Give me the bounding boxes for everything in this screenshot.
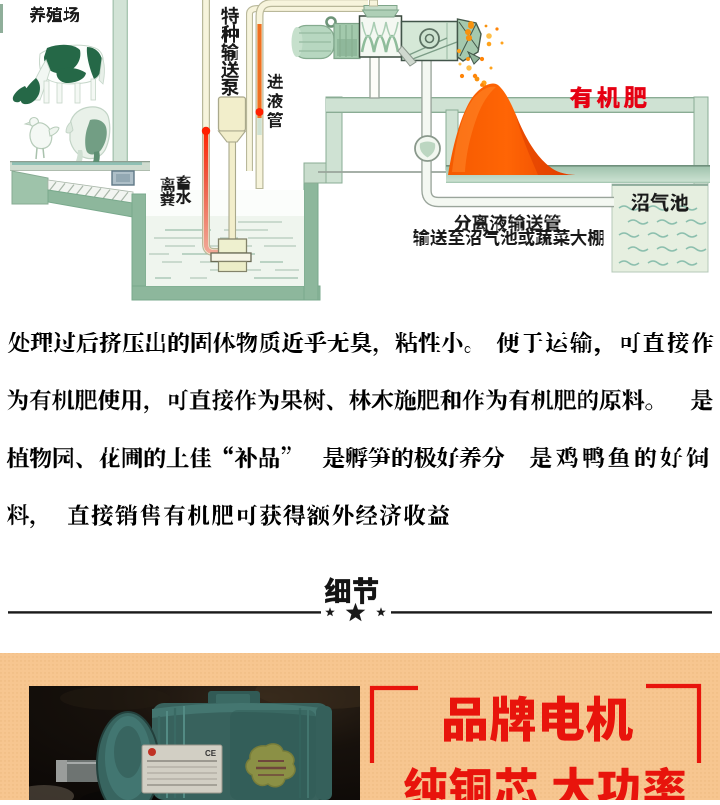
svg-text:CE: CE [205, 749, 217, 758]
